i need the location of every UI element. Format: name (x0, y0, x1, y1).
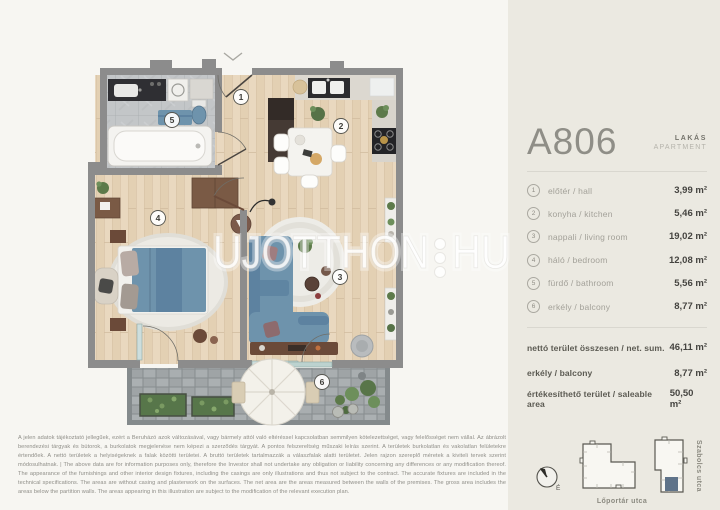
room-area: 5,56 m² (674, 278, 707, 289)
total-row: nettó terület összesen / net. sum. 46,11… (527, 335, 707, 361)
room-number-badge: 3 (527, 230, 540, 243)
watering-can (358, 372, 366, 380)
total-area: 50,50 m² (670, 388, 707, 410)
svg-text:1: 1 (239, 92, 244, 102)
total-area: 46,11 m² (670, 342, 708, 353)
room-row: 4 háló / bedroom 12,08 m² (527, 249, 707, 272)
room-badge: 4 (151, 211, 166, 226)
washing-machine (168, 79, 188, 101)
total-label: értékesíthető terület / saleable area (527, 389, 670, 409)
plant-pot (348, 404, 358, 414)
room-row: 6 erkély / balcony 8,77 m² (527, 295, 707, 318)
room-area: 12,08 m² (669, 255, 707, 266)
unit-type-en: APARTMENT (654, 143, 707, 152)
unit-type-hu: LAKÁS (654, 134, 707, 143)
unit-type: LAKÁS APARTMENT (654, 122, 707, 152)
bath-cabinet (190, 79, 213, 99)
room-label: háló / bedroom (548, 255, 608, 265)
svg-text:5: 5 (170, 115, 175, 125)
parasol (239, 359, 305, 425)
chair (274, 134, 289, 151)
pillow (120, 250, 140, 277)
totals-list: nettó terület összesen / net. sum. 46,11… (527, 335, 707, 412)
nightstand (110, 318, 126, 331)
room-label: nappali / living room (548, 232, 628, 242)
room-row: 1 előtér / hall 3,99 m² (527, 179, 707, 202)
floor-plan: 1 2 3 4 5 6 UJOTTHON HU UJOTTHON HU (0, 0, 520, 440)
room-badge: 1 (234, 90, 249, 105)
sink (114, 84, 138, 97)
room-area: 8,77 m² (674, 301, 707, 312)
compass-north-label: É (556, 483, 561, 492)
coffee-table (305, 277, 319, 291)
plant-icon (335, 395, 345, 405)
room-badge: 5 (165, 113, 180, 128)
plant-icon (345, 387, 359, 401)
room-row: 2 konyha / kitchen 5,46 m² (527, 202, 707, 225)
room-row: 5 fürdő / bathroom 5,56 m² (527, 272, 707, 295)
divider (527, 171, 707, 172)
svg-text:UJOTTHON: UJOTTHON (213, 226, 429, 278)
small-table (193, 329, 207, 343)
room-number-badge: 2 (527, 207, 540, 220)
room-row: 3 nappali / living room 19,02 m² (527, 225, 707, 248)
planter-box (192, 397, 234, 416)
room-label: erkély / balcony (548, 302, 610, 312)
room-label: konyha / kitchen (548, 209, 613, 219)
unit-title-row: A806 LAKÁS APARTMENT (527, 122, 707, 162)
street-label-right: Szabolcs utca (695, 440, 702, 492)
chair (331, 145, 346, 162)
svg-text:2: 2 (339, 121, 344, 131)
building-left (580, 441, 635, 488)
unit-info-panel: A806 LAKÁS APARTMENT 1 előtér / hall 3,9… (527, 122, 707, 412)
svg-text:4: 4 (156, 213, 161, 223)
floorplan-sheet: { "panel": { "unit_id": "A806", "type_hu… (0, 0, 720, 510)
compass: É (537, 467, 561, 492)
total-label: erkély / balcony (527, 368, 592, 378)
room-label: fürdő / bathroom (548, 278, 614, 288)
room-area: 3,99 m² (674, 185, 707, 196)
chair (274, 157, 289, 174)
nightstand (110, 230, 126, 243)
legal-disclaimer: A jelen adatok tájékoztató jellegűek, ez… (18, 434, 506, 497)
total-row: erkély / balcony 8,77 m² (527, 361, 707, 387)
total-label: nettó terület összesen / net. sum. (527, 343, 665, 353)
total-area: 8,77 m² (674, 368, 707, 379)
room-list: 1 előtér / hall 3,99 m² 2 konyha / kitch… (527, 179, 707, 318)
room-area: 19,02 m² (669, 231, 707, 242)
room-number-badge: 5 (527, 277, 540, 290)
street-label-bottom: Lőportár utca (597, 498, 647, 505)
room-label: előtér / hall (548, 186, 592, 196)
svg-text:6: 6 (320, 377, 325, 387)
sliding-glass-door (288, 362, 332, 367)
svg-text:HU: HU (452, 226, 510, 278)
balcony-chair (232, 382, 245, 403)
balcony-door-leaf (137, 324, 142, 360)
watermark: UJOTTHON HU UJOTTHON HU (213, 226, 510, 278)
chair (301, 175, 318, 188)
room-badge: 6 (315, 375, 330, 390)
unit-id: A806 (527, 122, 617, 162)
plant-icon (360, 380, 376, 396)
room-badge: 2 (334, 119, 349, 134)
divider (527, 327, 707, 328)
room-number-badge: 6 (527, 300, 540, 313)
plant-pot (333, 407, 344, 418)
toilet (192, 106, 206, 124)
room-area: 5,46 m² (674, 208, 707, 219)
total-row: értékesíthető terület / saleable area 50… (527, 386, 707, 412)
site-map: É Lőportár utca Szabolcs utca (510, 428, 720, 510)
room-number-badge: 1 (527, 184, 540, 197)
highlighted-unit (665, 477, 678, 491)
entrance-chevron-icon (224, 53, 242, 60)
room-number-badge: 4 (527, 254, 540, 267)
pillow (120, 283, 139, 309)
